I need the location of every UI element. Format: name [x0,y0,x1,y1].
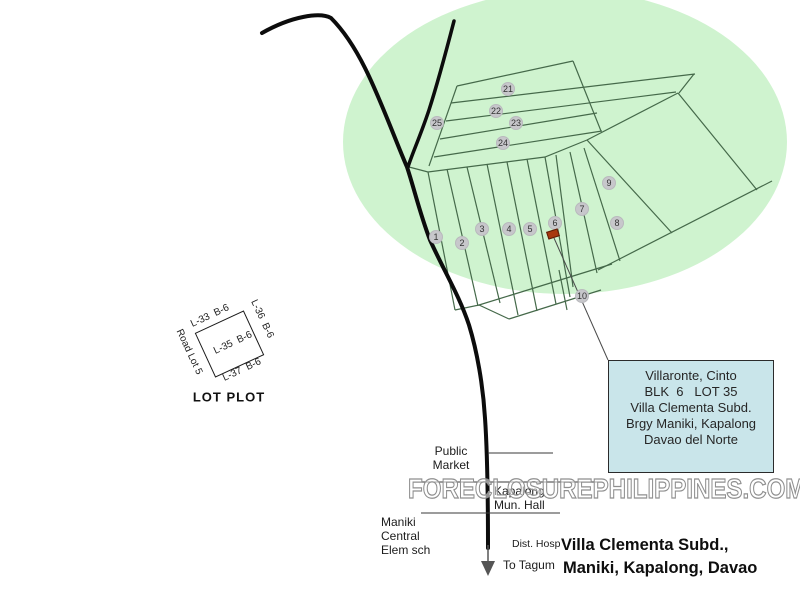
label-to-tagum: To Tagum [503,558,555,572]
lot-plot-caption: LOT PLOT [193,390,265,405]
lot-marker-23: 23 [509,116,523,130]
lot-marker-10: 10 [575,289,589,303]
lot-marker-25: 25 [430,116,444,130]
to-tagum-arrow [481,545,495,576]
info-box-province: Davao del Norte [609,432,773,448]
lot-marker-21: 21 [501,82,515,96]
info-box-subdivision: Villa Clementa Subd. [609,400,773,416]
lot-marker-4: 4 [502,222,516,236]
label-public-market: Public Market [420,444,482,472]
map-canvas [0,0,800,600]
lot-marker-9: 9 [602,176,616,190]
map-title-line2: Maniki, Kapalong, Davao [563,557,757,580]
subdivision-region [343,0,787,294]
lot-marker-3: 3 [475,222,489,236]
info-box-owner: Villaronte, Cinto [609,368,773,384]
lot-marker-5: 5 [523,222,537,236]
info-box: Villaronte, Cinto BLK 6 LOT 35 Villa Cle… [608,360,774,473]
map-title: Villa Clementa Subd., Maniki, Kapalong, … [561,534,757,580]
lot-marker-7: 7 [575,202,589,216]
label-maniki-central-elem: Maniki Central Elem sch [381,515,430,557]
lot-marker-1: 1 [429,230,443,244]
watermark: FORECLOSUREPHILIPPINES.COM [408,473,800,505]
lot-marker-22: 22 [489,104,503,118]
map-title-line1: Villa Clementa Subd., [561,534,757,557]
lot-marker-2: 2 [455,236,469,250]
lot-marker-8: 8 [610,216,624,230]
info-box-barangay: Brgy Maniki, Kapalong [609,416,773,432]
label-dist-hosp: Dist. Hosp [512,537,560,551]
vicinity-map: 123456789102122232425 L-33 B-6 L-35 B-6 … [0,0,800,600]
lot-marker-24: 24 [496,136,510,150]
info-box-blk-lot: BLK 6 LOT 35 [609,384,773,400]
